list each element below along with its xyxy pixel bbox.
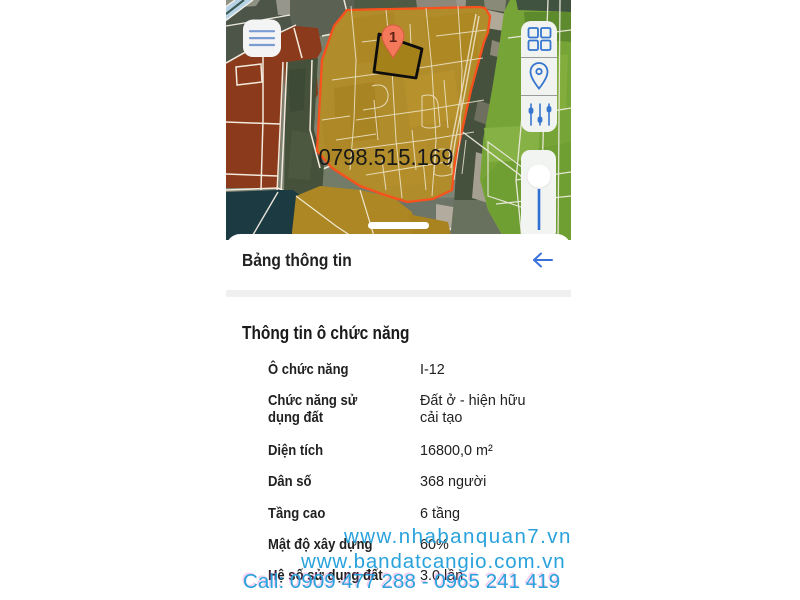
- svg-text:1: 1: [389, 29, 397, 46]
- svg-text:0798.515.169: 0798.515.169: [319, 144, 454, 170]
